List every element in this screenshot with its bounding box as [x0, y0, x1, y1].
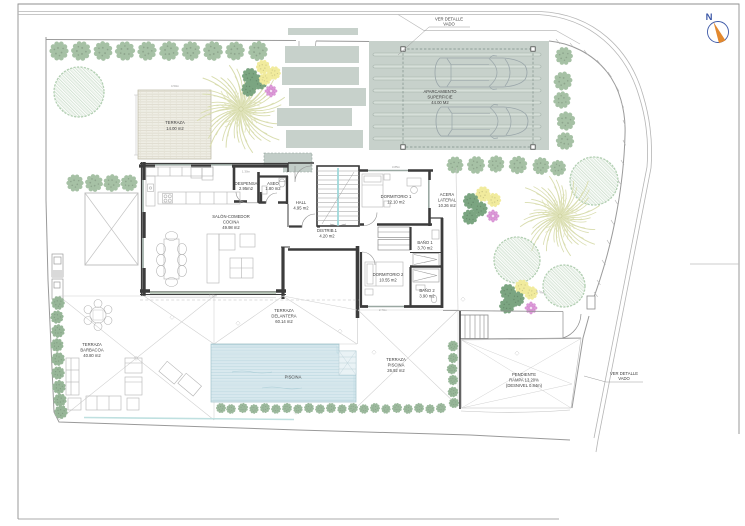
svg-text:VADO: VADO [618, 376, 630, 381]
svg-text:VADO: VADO [443, 22, 455, 27]
svg-text:SALÓN-COMEDOR: SALÓN-COMEDOR [212, 214, 249, 219]
svg-text:APARCAMIENTO: APARCAMIENTO [423, 89, 457, 94]
svg-text:BAÑO 2: BAÑO 2 [419, 288, 435, 293]
svg-text:7.73m: 7.73m [209, 294, 218, 298]
svg-text:BAÑO 1: BAÑO 1 [417, 240, 433, 245]
svg-text:DELANTERA: DELANTERA [271, 313, 296, 318]
svg-text:TERRAZA: TERRAZA [274, 308, 294, 313]
svg-text:DISTRIB.1: DISTRIB.1 [317, 228, 338, 233]
svg-text:COCINA: COCINA [223, 219, 239, 224]
svg-text:3.85m: 3.85m [392, 165, 401, 169]
svg-text:DORMITORIO 2: DORMITORIO 2 [373, 272, 404, 277]
svg-text:1.30m: 1.30m [242, 170, 251, 174]
svg-text:4.50m: 4.50m [171, 84, 180, 88]
svg-text:26.92 m2: 26.92 m2 [387, 368, 405, 373]
svg-text:2.95m2: 2.95m2 [239, 186, 254, 191]
svg-text:3.70 m2: 3.70 m2 [417, 245, 433, 250]
svg-text:TERRAZA: TERRAZA [386, 357, 406, 362]
svg-text:SUPERFICIE: SUPERFICIE [427, 94, 452, 99]
svg-text:TERRAZA: TERRAZA [165, 120, 185, 125]
svg-text:TERRAZA: TERRAZA [82, 342, 102, 347]
svg-text:DORMITORIO 1: DORMITORIO 1 [381, 194, 412, 199]
svg-text:14.00 m2: 14.00 m2 [166, 126, 184, 131]
svg-text:40.80 m2: 40.80 m2 [83, 353, 101, 358]
svg-text:10.55 m2: 10.55 m2 [379, 277, 397, 282]
svg-text:HALL: HALL [296, 200, 307, 205]
svg-text:44.00 M2: 44.00 M2 [431, 100, 449, 105]
svg-text:12.10 m2: 12.10 m2 [387, 199, 405, 204]
svg-text:BARBACOA: BARBACOA [80, 347, 103, 352]
svg-text:ACERA: ACERA [440, 192, 455, 197]
svg-text:10.26 m2: 10.26 m2 [438, 203, 456, 208]
svg-text:PENDIENTE: PENDIENTE [512, 372, 536, 377]
svg-text:3.90 m2: 3.90 m2 [419, 293, 435, 298]
svg-text:1.80 m2: 1.80 m2 [265, 186, 281, 191]
svg-text:4.95 m2: 4.95 m2 [293, 205, 309, 210]
svg-text:4.20 m2: 4.20 m2 [319, 233, 335, 238]
svg-text:60.14 m2: 60.14 m2 [275, 319, 293, 324]
svg-text:N: N [706, 12, 713, 23]
svg-text:RAMPA 13.20%: RAMPA 13.20% [509, 377, 539, 382]
svg-text:(DESNIVEL 0.84m): (DESNIVEL 0.84m) [506, 383, 543, 388]
svg-text:LATERAL: LATERAL [438, 197, 457, 202]
svg-text:49.98 m2: 49.98 m2 [222, 225, 240, 230]
svg-text:PISCINA: PISCINA [285, 375, 302, 380]
svg-text:PISCINA: PISCINA [388, 362, 405, 367]
